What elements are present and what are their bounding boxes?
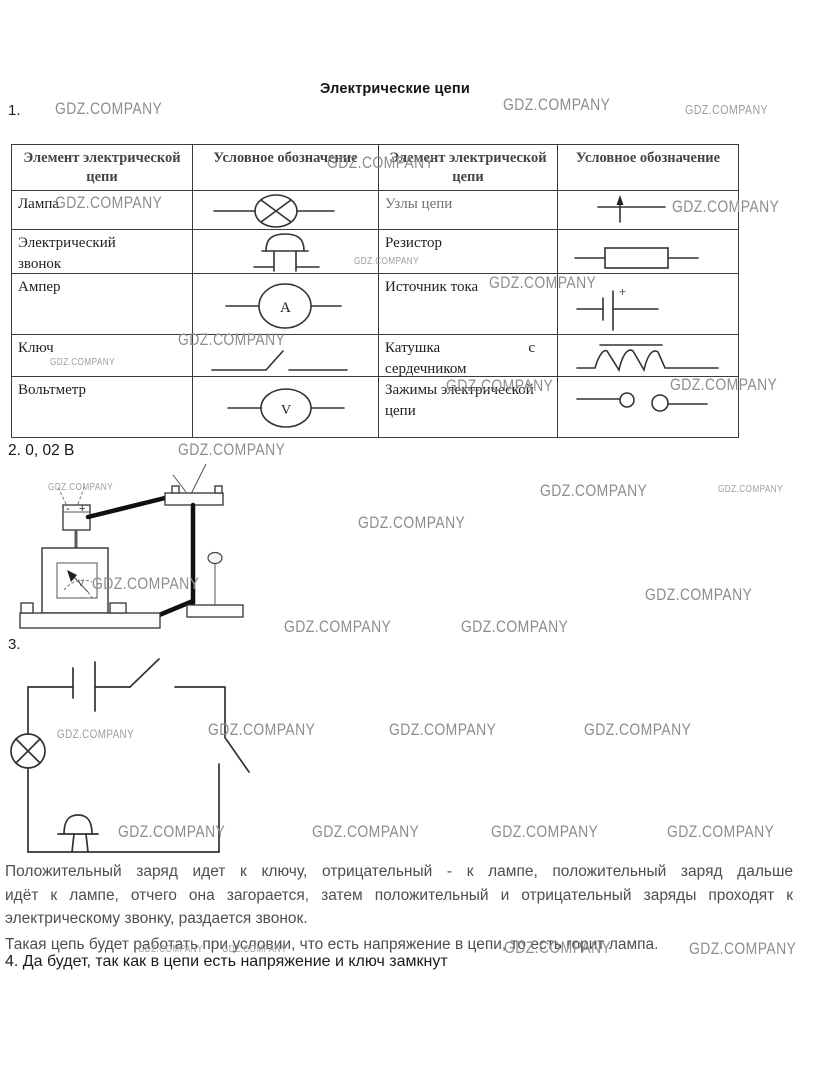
watermark: GDZ.COMPANY (685, 103, 768, 116)
watermark: GDZ.COMPANY (718, 485, 783, 495)
voltmeter-sketch-letter: V (78, 578, 84, 588)
resistor-symbol-icon (558, 230, 738, 274)
switch-symbol-icon (193, 335, 379, 377)
table-header-element-1: Элемент электрической цепи (12, 145, 193, 191)
question-2-number: 2. (8, 442, 21, 459)
circuit-diagram (8, 648, 278, 863)
base-platform (20, 613, 160, 628)
key-platform (187, 605, 243, 617)
table-cell-resistor-label: Резистор (379, 230, 558, 274)
table-cell-voltmeter-label: Вольтметр (12, 377, 193, 437)
table-header-symbol-1: Условное обозначение (193, 145, 379, 191)
switch-blade-top (130, 659, 159, 687)
document-page: Электрические цепи 1. Элемент электричес… (0, 0, 823, 1072)
coil-symbol-icon (558, 335, 738, 377)
page-title: Электрические цепи (0, 81, 790, 97)
junction-symbol-icon (558, 191, 738, 230)
watermark: GDZ.COMPANY (503, 96, 610, 113)
voltmeter-symbol-icon: V (193, 377, 379, 437)
ammeter-symbol-icon: A (193, 274, 379, 335)
question-1-number: 1. (8, 102, 21, 119)
answer-paragraph: Положительный заряд идет к ключу, отрица… (5, 860, 793, 956)
wire-battery-to-switch (88, 498, 165, 517)
switch-blade-right (226, 739, 249, 772)
question-2-value: 0, 02 В (25, 442, 74, 459)
key-knob (208, 553, 222, 564)
table-cell-coil-label: Катушка с сердечником (379, 335, 558, 377)
watermark: GDZ.COMPANY (389, 721, 496, 738)
table-cell-terminals-label: Зажимы электрической цепи (379, 377, 558, 437)
voltmeter-letter: V (281, 403, 291, 418)
watermark: GDZ.COMPANY (312, 823, 419, 840)
watermark: GDZ.COMPANY (540, 482, 647, 499)
ammeter-letter: A (280, 300, 291, 316)
table-header-symbol-2: Условное обозначение (558, 145, 738, 191)
battery-symbol (73, 662, 95, 711)
watermark: GDZ.COMPANY (461, 618, 568, 635)
current-source-symbol-icon: + (558, 274, 738, 335)
source-plus-sign: + (619, 284, 626, 299)
terminals-symbol-icon (558, 377, 738, 437)
experiment-sketch: - + V (18, 460, 268, 645)
table-cell-ammeter-label: Ампер (12, 274, 193, 335)
table-cell-switch-label: Ключ (12, 335, 193, 377)
table-cell-bell-label: Электрический звонок (12, 230, 193, 274)
table-cell-source-label: Источник тока (379, 274, 558, 335)
watermark: GDZ.COMPANY (667, 823, 774, 840)
voltmeter-body (42, 548, 108, 613)
lamp-symbol-icon (193, 191, 379, 230)
watermark: GDZ.COMPANY (584, 721, 691, 738)
watermark: GDZ.COMPANY (284, 618, 391, 635)
question-2-answer: 2. 0, 02 В (8, 442, 74, 460)
paragraph-line: Положительный заряд идет к ключу, отрица… (5, 860, 793, 884)
battery-minus-sign: - (66, 503, 70, 515)
watermark: GDZ.COMPANY (178, 441, 285, 458)
table-header-element-2: Элемент электрической цепи (379, 145, 558, 191)
table-cell-lamp-label: Лампа (12, 191, 193, 230)
bell-symbol-icon (193, 230, 379, 274)
paragraph-line: электрическому звонку, раздается звонок. (5, 907, 793, 931)
watermark: GDZ.COMPANY (491, 823, 598, 840)
circuit-elements-table: Элемент электрической цепи Условное обоз… (11, 144, 739, 438)
watermark: GDZ.COMPANY (645, 586, 752, 603)
watermark: GDZ.COMPANY (358, 514, 465, 531)
battery-plus-sign: + (79, 503, 85, 515)
watermark: GDZ.COMPANY (55, 100, 162, 117)
table-cell-junction-label: Узлы цепи (379, 191, 558, 230)
question-4-answer: 4. Да будет, так как в цепи есть напряже… (5, 953, 448, 971)
paragraph-line: идёт к лампе, отчего она загорается, зат… (5, 884, 793, 908)
